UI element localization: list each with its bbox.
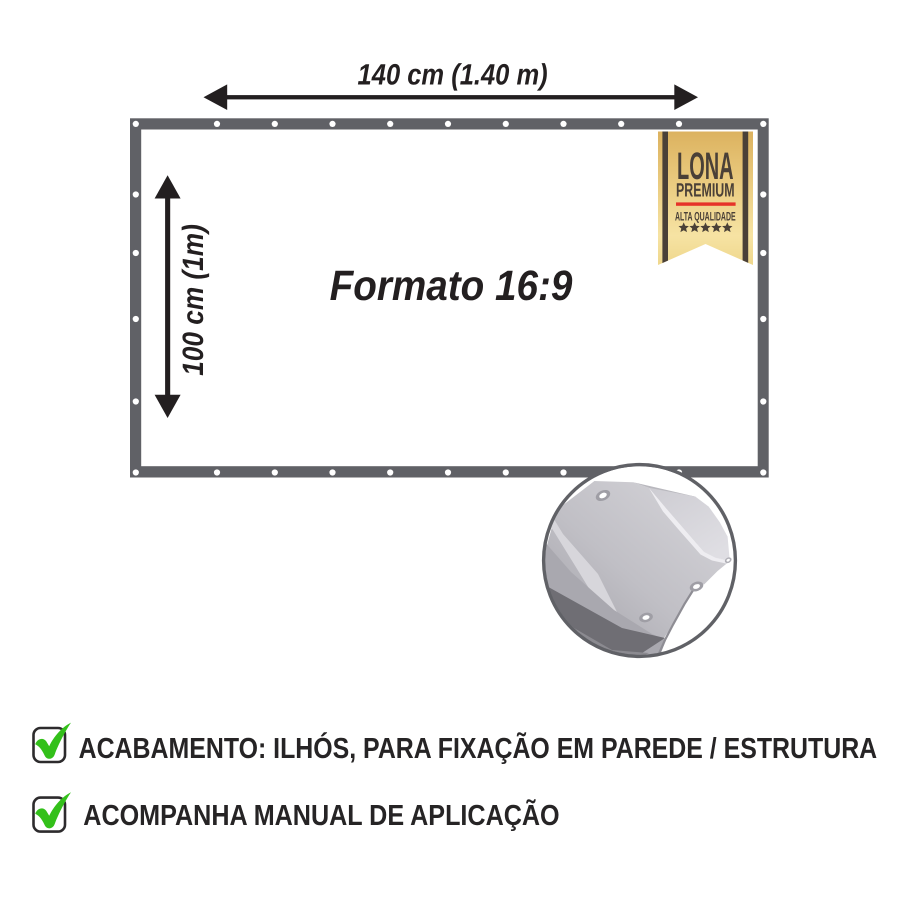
svg-text:ACOMPANHA MANUAL DE APLICAÇÃO: ACOMPANHA MANUAL DE APLICAÇÃO <box>83 799 559 832</box>
svg-text:140 cm (1.40 m): 140 cm (1.40 m) <box>358 59 548 92</box>
svg-text:PREMIUM: PREMIUM <box>676 180 735 201</box>
svg-text:ACABAMENTO: ILHÓS, PARA FIXAÇÃ: ACABAMENTO: ILHÓS, PARA FIXAÇÃO EM PARED… <box>79 732 878 765</box>
svg-text:Formato 16:9: Formato 16:9 <box>330 263 573 310</box>
svg-text:ALTA QUALIDADE: ALTA QUALIDADE <box>675 210 736 224</box>
svg-text:100 cm (1m): 100 cm (1m) <box>177 224 210 376</box>
